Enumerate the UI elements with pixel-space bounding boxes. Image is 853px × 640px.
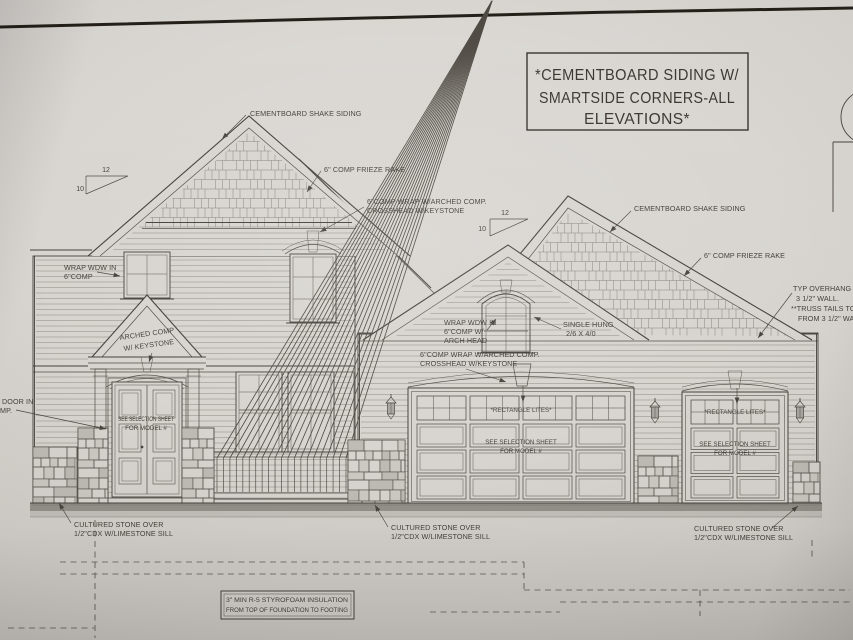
- insulation-note: 3" MIN R-5 STYROFOAM INSULATION FROM TOP…: [221, 591, 354, 619]
- label-overhang-1: TYP OVERHANG 1'-: [793, 284, 853, 293]
- garage-door-large: [408, 388, 634, 505]
- label-entry-selection-1: SEE SELECTION SHEET: [118, 416, 174, 423]
- slope-rise-label: 12: [501, 210, 509, 217]
- left-gable: [88, 116, 410, 256]
- label-frieze-rake-right: 6" COMP FRIEZE RAKE: [704, 251, 785, 260]
- label-comp-wrap-upper-2: CROSSHEAD W/KEYSTONE: [367, 206, 464, 215]
- label-door-in-2: MP.: [0, 406, 12, 415]
- label-wrap-wdw-left-1: WRAP WDW IN: [64, 263, 116, 272]
- label-entry-selection-2: FOR MODEL #: [125, 425, 167, 432]
- label-door-in-1: DOOR IN: [2, 397, 33, 406]
- roof-slope-marker-left: 12 10: [76, 167, 128, 194]
- label-rectangle-lites-large: *RECTANGLE LITES*: [490, 407, 552, 414]
- label-garage-selection-small-1: SEE SELECTION SHEET: [699, 441, 771, 448]
- entry-door: [108, 378, 186, 498]
- right-edge-partial-shapes: [833, 90, 853, 212]
- insulation-note-line-1: 3" MIN R-5 STYROFOAM INSULATION: [226, 597, 348, 604]
- foundation: [30, 503, 822, 517]
- label-single-hung-2: 2/6 X 4/0: [566, 329, 596, 338]
- label-overhang-2: 3 1/2" WALL.: [796, 294, 839, 303]
- label-shake-siding-left: CEMENTBOARD SHAKE SIDING: [250, 109, 362, 118]
- label-rectangle-lites-small: *RECTANGLE LITES*: [704, 409, 766, 416]
- slope-run-label: 10: [76, 186, 84, 193]
- label-stone-center-1: CULTURED STONE OVER: [391, 523, 481, 532]
- title-block: *CEMENTBOARD SIDING W/ SMARTSIDE CORNERS…: [527, 53, 748, 130]
- label-garage-selection-large-1: SEE SELECTION SHEET: [485, 439, 557, 446]
- front-elevation-drawing: 12 10 12 10 *CEMENTBOARD SIDING W/ SMART…: [0, 0, 853, 640]
- label-garage-selection-small-2: FOR MODEL #: [714, 450, 756, 457]
- label-frieze-rake-left: 6" COMP FRIEZE RAKE: [324, 165, 405, 174]
- title-line-1: *CEMENTBOARD SIDING W/: [535, 67, 739, 84]
- slope-rise-label: 12: [102, 167, 110, 174]
- title-line-3: ELEVATIONS*: [584, 111, 690, 128]
- label-stone-right-2: 1/2"CDX W/LIMESTONE SILL: [694, 533, 793, 542]
- label-single-hung-1: SINGLE HUNG: [563, 320, 614, 329]
- label-overhang-3: **TRUSS TAILS TO: [791, 304, 853, 313]
- label-wrap-wdw-arch-1: WRAP WDW IN: [444, 318, 496, 327]
- label-wrap-wdw-left-2: 6"COMP: [64, 272, 93, 281]
- label-stone-left-1: CULTURED STONE OVER: [74, 520, 164, 529]
- label-garage-selection-large-2: FOR MODEL #: [500, 448, 542, 455]
- label-comp-wrap-upper-1: 6"COMP WRAP W/ARCHED COMP.: [367, 197, 487, 206]
- label-stone-right-1: CULTURED STONE OVER: [694, 524, 784, 533]
- label-stone-center-2: 1/2"CDX W/LIMESTONE SILL: [391, 532, 490, 541]
- label-stone-left-2: 1/2"CDX W/LIMESTONE SILL: [74, 529, 173, 538]
- label-wrap-wdw-arch-3: ARCH HEAD: [444, 336, 487, 345]
- roof-slope-marker-center: 12 10: [478, 210, 528, 236]
- blueprint-photo: 12 10 12 10 *CEMENTBOARD SIDING W/ SMART…: [0, 0, 853, 640]
- label-comp-wrap-lower-1: 6"COMP WRAP W/ARCHED COMP.: [420, 350, 540, 359]
- title-line-2: SMARTSIDE CORNERS-ALL: [539, 90, 735, 107]
- insulation-note-line-2: FROM TOP OF FOUNDATION TO FOOTING: [226, 607, 348, 614]
- door-knob: [141, 446, 144, 449]
- label-wrap-wdw-arch-2: 6"COMP W/: [444, 327, 484, 336]
- slope-run-label: 10: [478, 226, 486, 233]
- upper-window-1: [120, 252, 174, 299]
- label-comp-wrap-lower-2: CROSSHEAD W/KEYSTONE: [420, 359, 517, 368]
- label-shake-siding-right: CEMENTBOARD SHAKE SIDING: [634, 204, 746, 213]
- label-overhang-4: FROM 3 1/2" WA: [798, 314, 853, 323]
